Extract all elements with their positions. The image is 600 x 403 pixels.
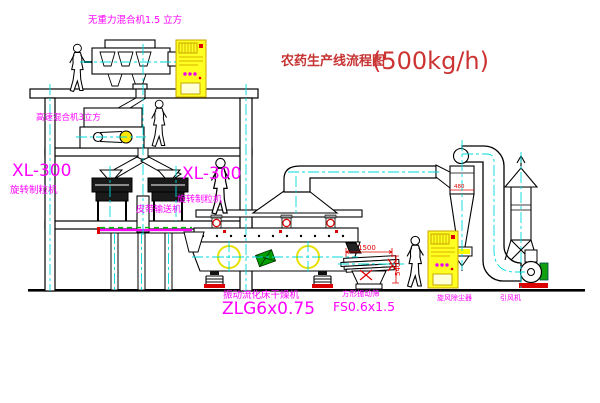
label-sieve: 方形振动筛 [342,288,380,298]
label-sieve-model: FS0.6x1.5 [333,299,395,314]
label-belt-conveyor: 皮带输送机 [136,203,181,215]
label-granulator-center-name: 旋转制粒机 [177,193,222,205]
drawing-canvas: 农药生产线流程图 (500kg/h) 无重力混合机1.5 立方 高速混合机3立方… [0,0,600,403]
label-gravity-mixer: 无重力混合机1.5 立方 [88,14,182,26]
control-cabinet-top [176,40,206,97]
spring-leg-right [312,271,333,288]
fan-base [519,283,548,288]
label-granulator-center-model: XL-300 [182,164,241,184]
page-title: 农药生产线流程图 [280,53,385,69]
worker-ground [407,236,423,287]
worker-top-platform [70,44,85,91]
induced-draft-fan [519,250,548,288]
dim-sieve-height: 540 [394,263,402,276]
page-title-capacity: (500kg/h) [372,47,489,75]
square-vibrating-sieve [341,255,400,289]
exhaust-hood [253,191,337,213]
high-speed-mixer [80,98,146,148]
label-cyclone: 旋风除尘器 [437,293,472,302]
worker-mid-level [152,100,167,146]
cyclone-outlet-port [454,149,469,164]
label-fan: 引风机 [500,293,521,302]
label-granulator-left-model: XL-300 [12,161,71,181]
label-granulator-left-name: 旋转制粒机 [10,184,58,196]
label-dryer-model: ZLG6x0.75 [222,299,315,319]
process-flow-diagram: 农药生产线流程图 (500kg/h) 无重力混合机1.5 立方 高速混合机3立方… [0,0,600,403]
control-cabinet-right [428,231,458,288]
granulator-left [92,170,132,221]
spring-leg-left [204,271,225,288]
dim-cyclone: 480 [454,184,465,190]
dim-sieve-length: 1500 [358,244,376,252]
dryer-exhaust-duct [284,166,436,192]
label-high-speed-mixer: 高速混合机3立方 [36,112,101,123]
fluid-bed-dryer [184,191,362,288]
belt-conveyor [97,227,192,290]
